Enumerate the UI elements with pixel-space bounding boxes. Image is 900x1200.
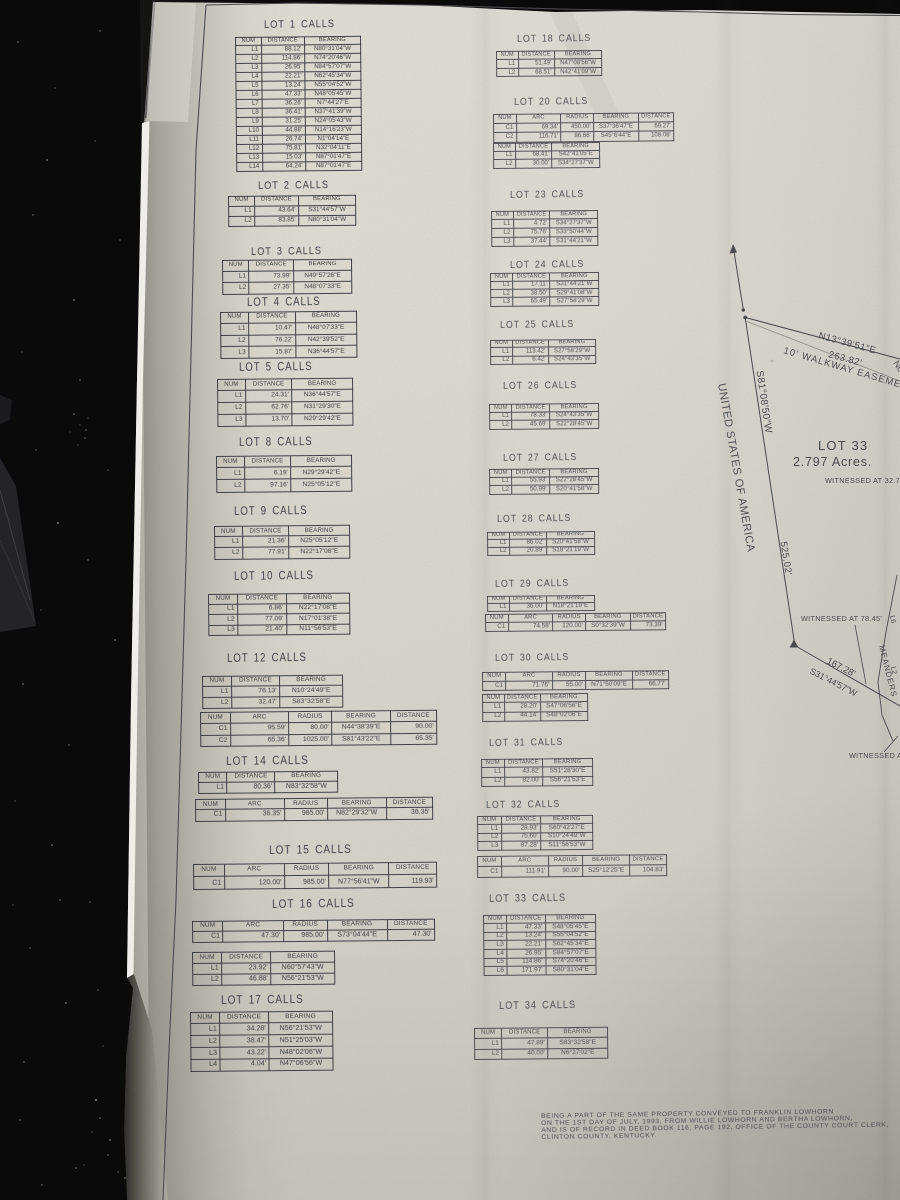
svg-text:N0: N0 [891,359,900,374]
svg-text:2.797 Acres.: 2.797 Acres. [793,455,872,469]
svg-text:S81°08'50"W: S81°08'50"W [754,370,774,434]
svg-text:525.02': 525.02' [778,541,794,577]
svg-text:WITNESSED A: WITNESSED A [849,751,900,760]
svg-text:WITNESSED AT 78.45': WITNESSED AT 78.45' [801,614,882,623]
svg-text:L6: L6 [888,615,896,624]
svg-text:LOT 33: LOT 33 [818,438,868,453]
svg-text:UNITED STATES OF AMERICA: UNITED STATES OF AMERICA [715,382,757,553]
svg-text:WITNESSED AT 32.7: WITNESSED AT 32.7 [825,476,900,485]
